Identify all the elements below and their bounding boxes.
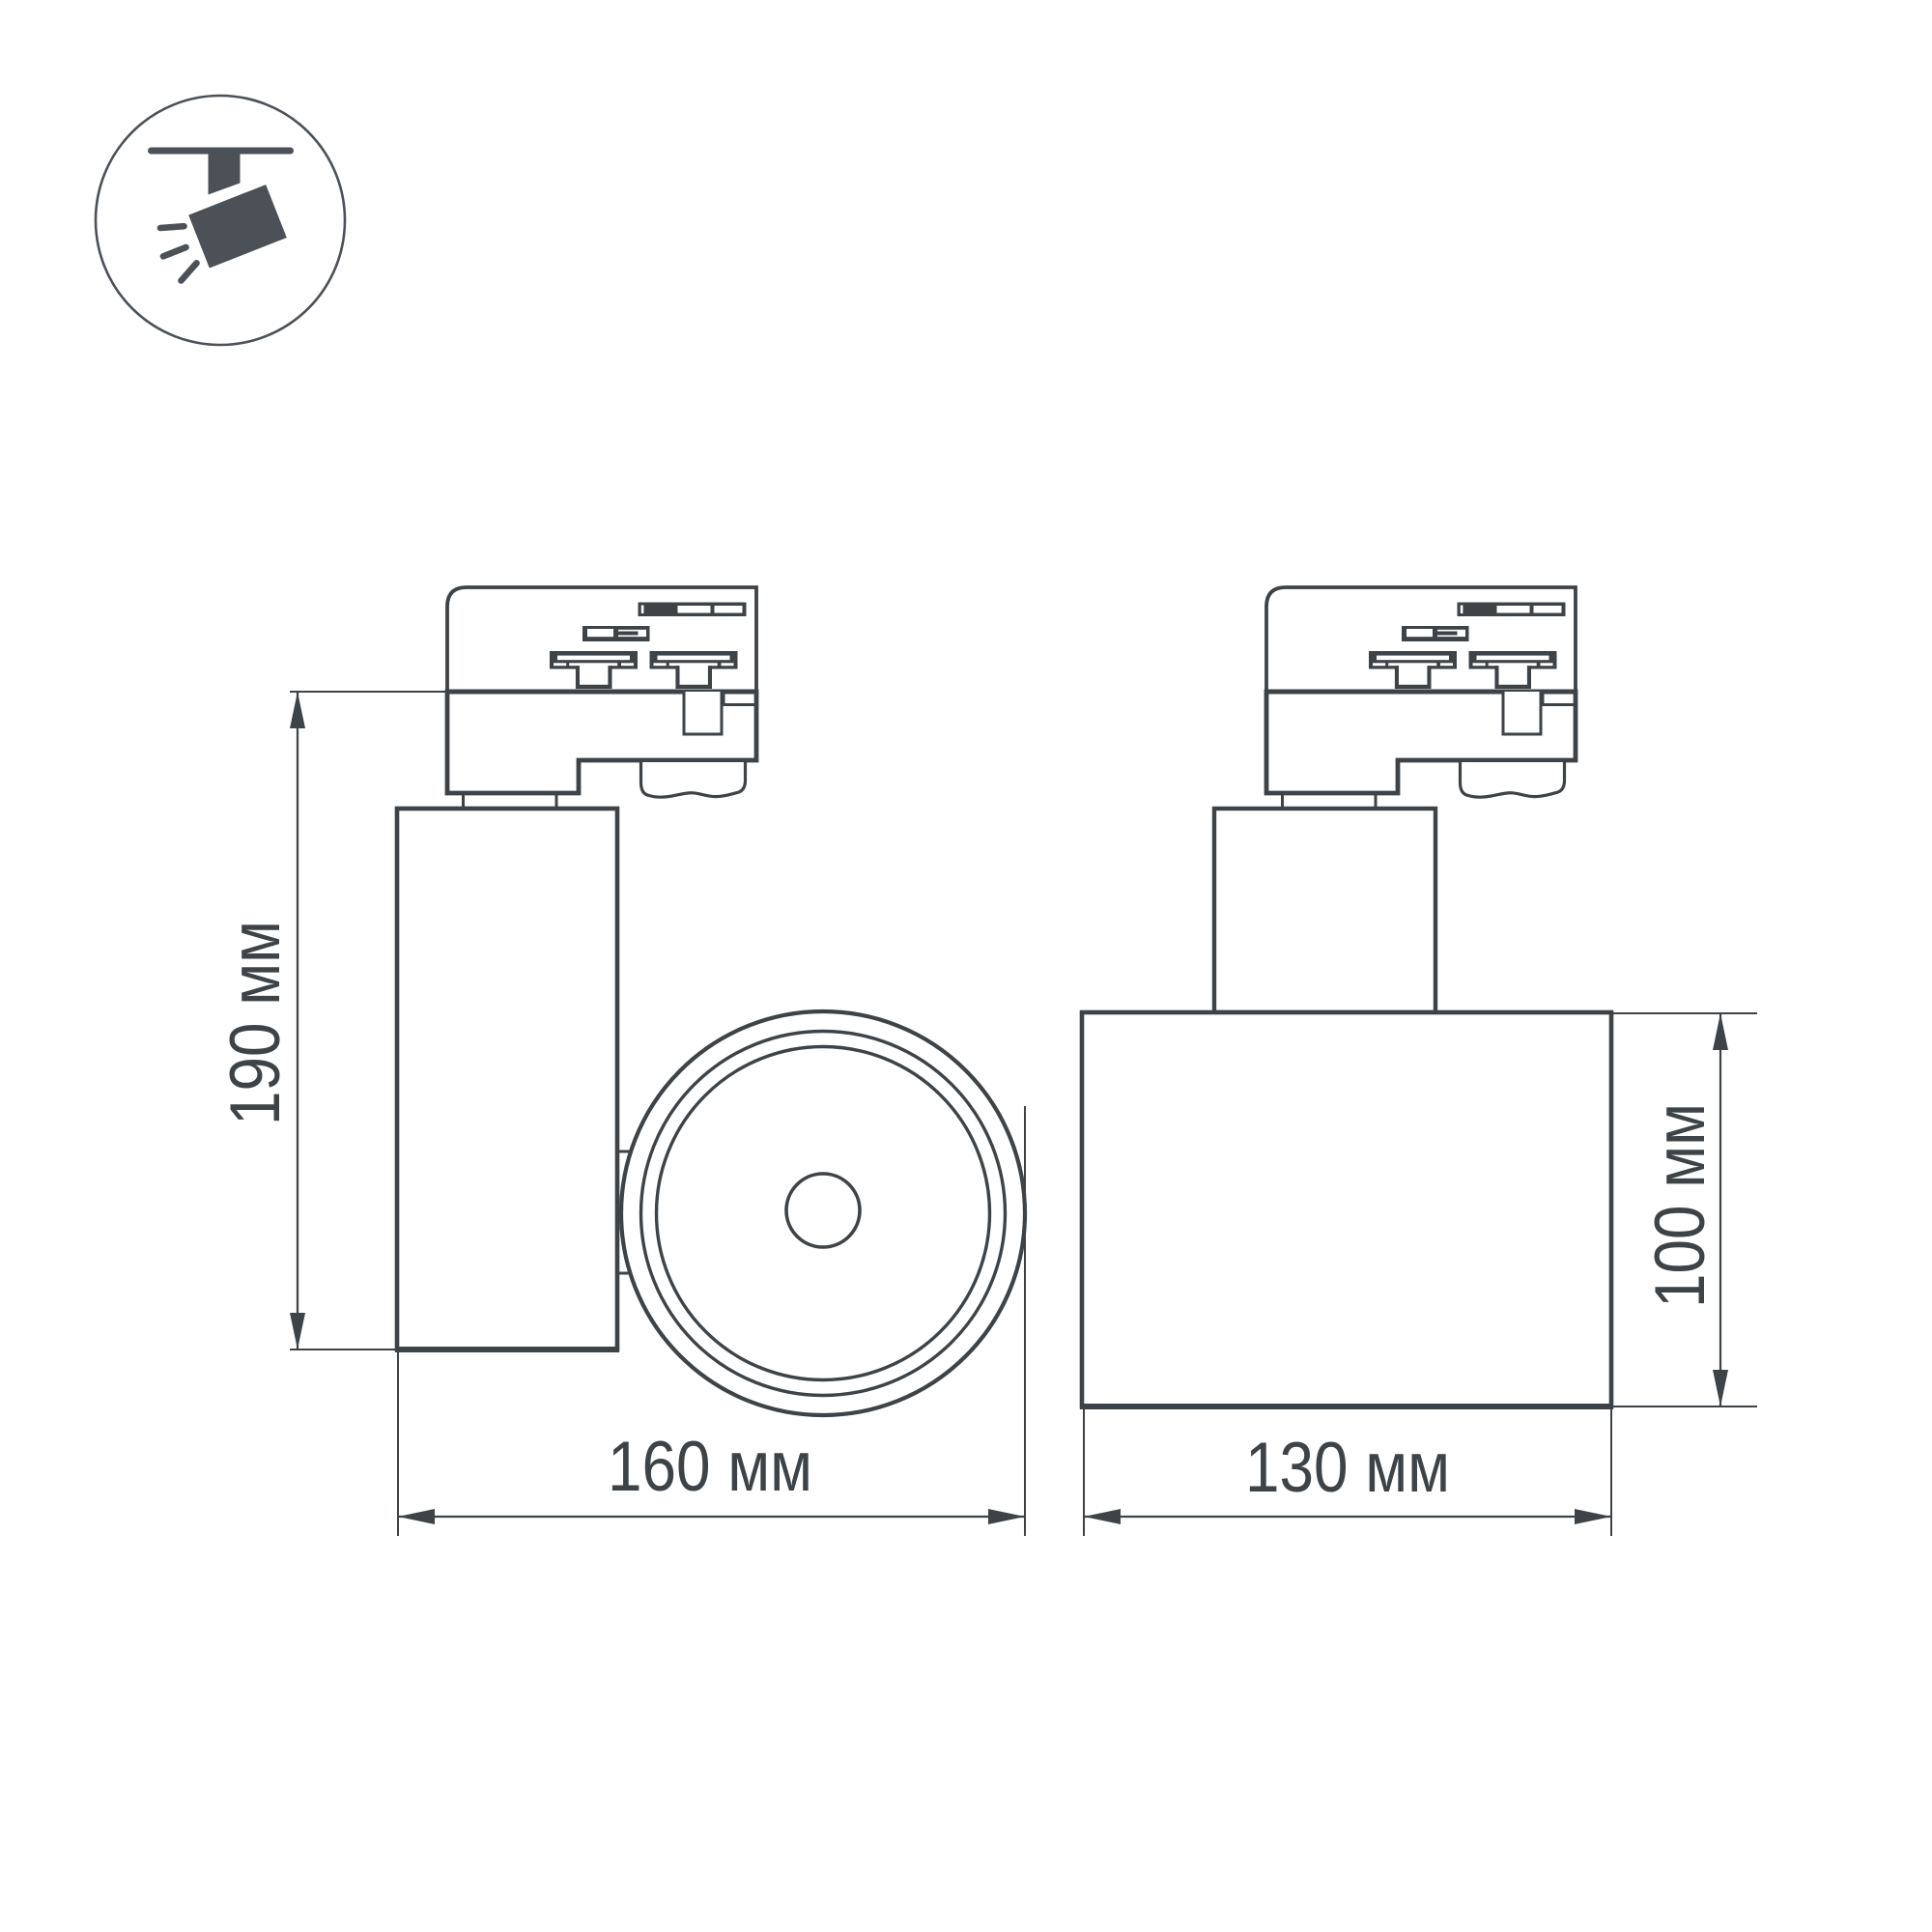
svg-text:130 мм: 130 мм xyxy=(1245,1429,1450,1507)
svg-text:190 мм: 190 мм xyxy=(216,921,295,1125)
svg-text:100 мм: 100 мм xyxy=(1641,1103,1719,1308)
svg-text:160 мм: 160 мм xyxy=(608,1428,812,1506)
